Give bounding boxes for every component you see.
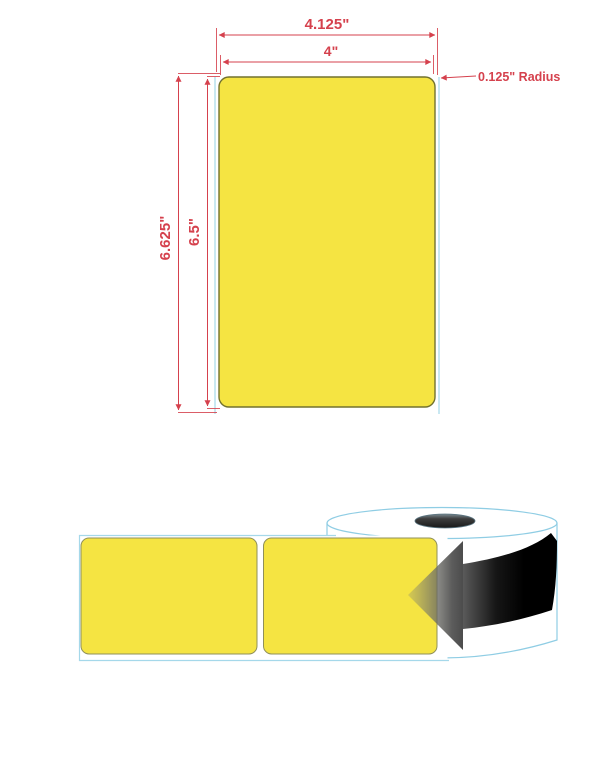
spec-diagram-svg: 4.125" 4" 6.625" 6.5" 0.125" Radius bbox=[0, 0, 600, 776]
label-width-value: 4" bbox=[324, 43, 338, 59]
liner-height-value: 6.625" bbox=[157, 216, 174, 261]
label-strip bbox=[80, 536, 450, 661]
corner-radius-callout: 0.125" Radius bbox=[441, 70, 560, 84]
dim-label-width: 4" bbox=[221, 43, 434, 75]
label-dimension-diagram: 4.125" 4" 6.625" 6.5" 0.125" Radius bbox=[157, 16, 560, 414]
corner-radius-value: 0.125" Radius bbox=[478, 70, 560, 84]
label-swatch bbox=[219, 77, 435, 407]
label-roll-illustration bbox=[80, 508, 558, 661]
roll-core-hole bbox=[415, 514, 475, 528]
label-spec-sheet: 4.125" 4" 6.625" 6.5" 0.125" Radius bbox=[0, 0, 600, 776]
strip-label-1 bbox=[81, 538, 257, 654]
label-height-value: 6.5" bbox=[186, 218, 203, 246]
liner-width-value: 4.125" bbox=[305, 16, 350, 33]
